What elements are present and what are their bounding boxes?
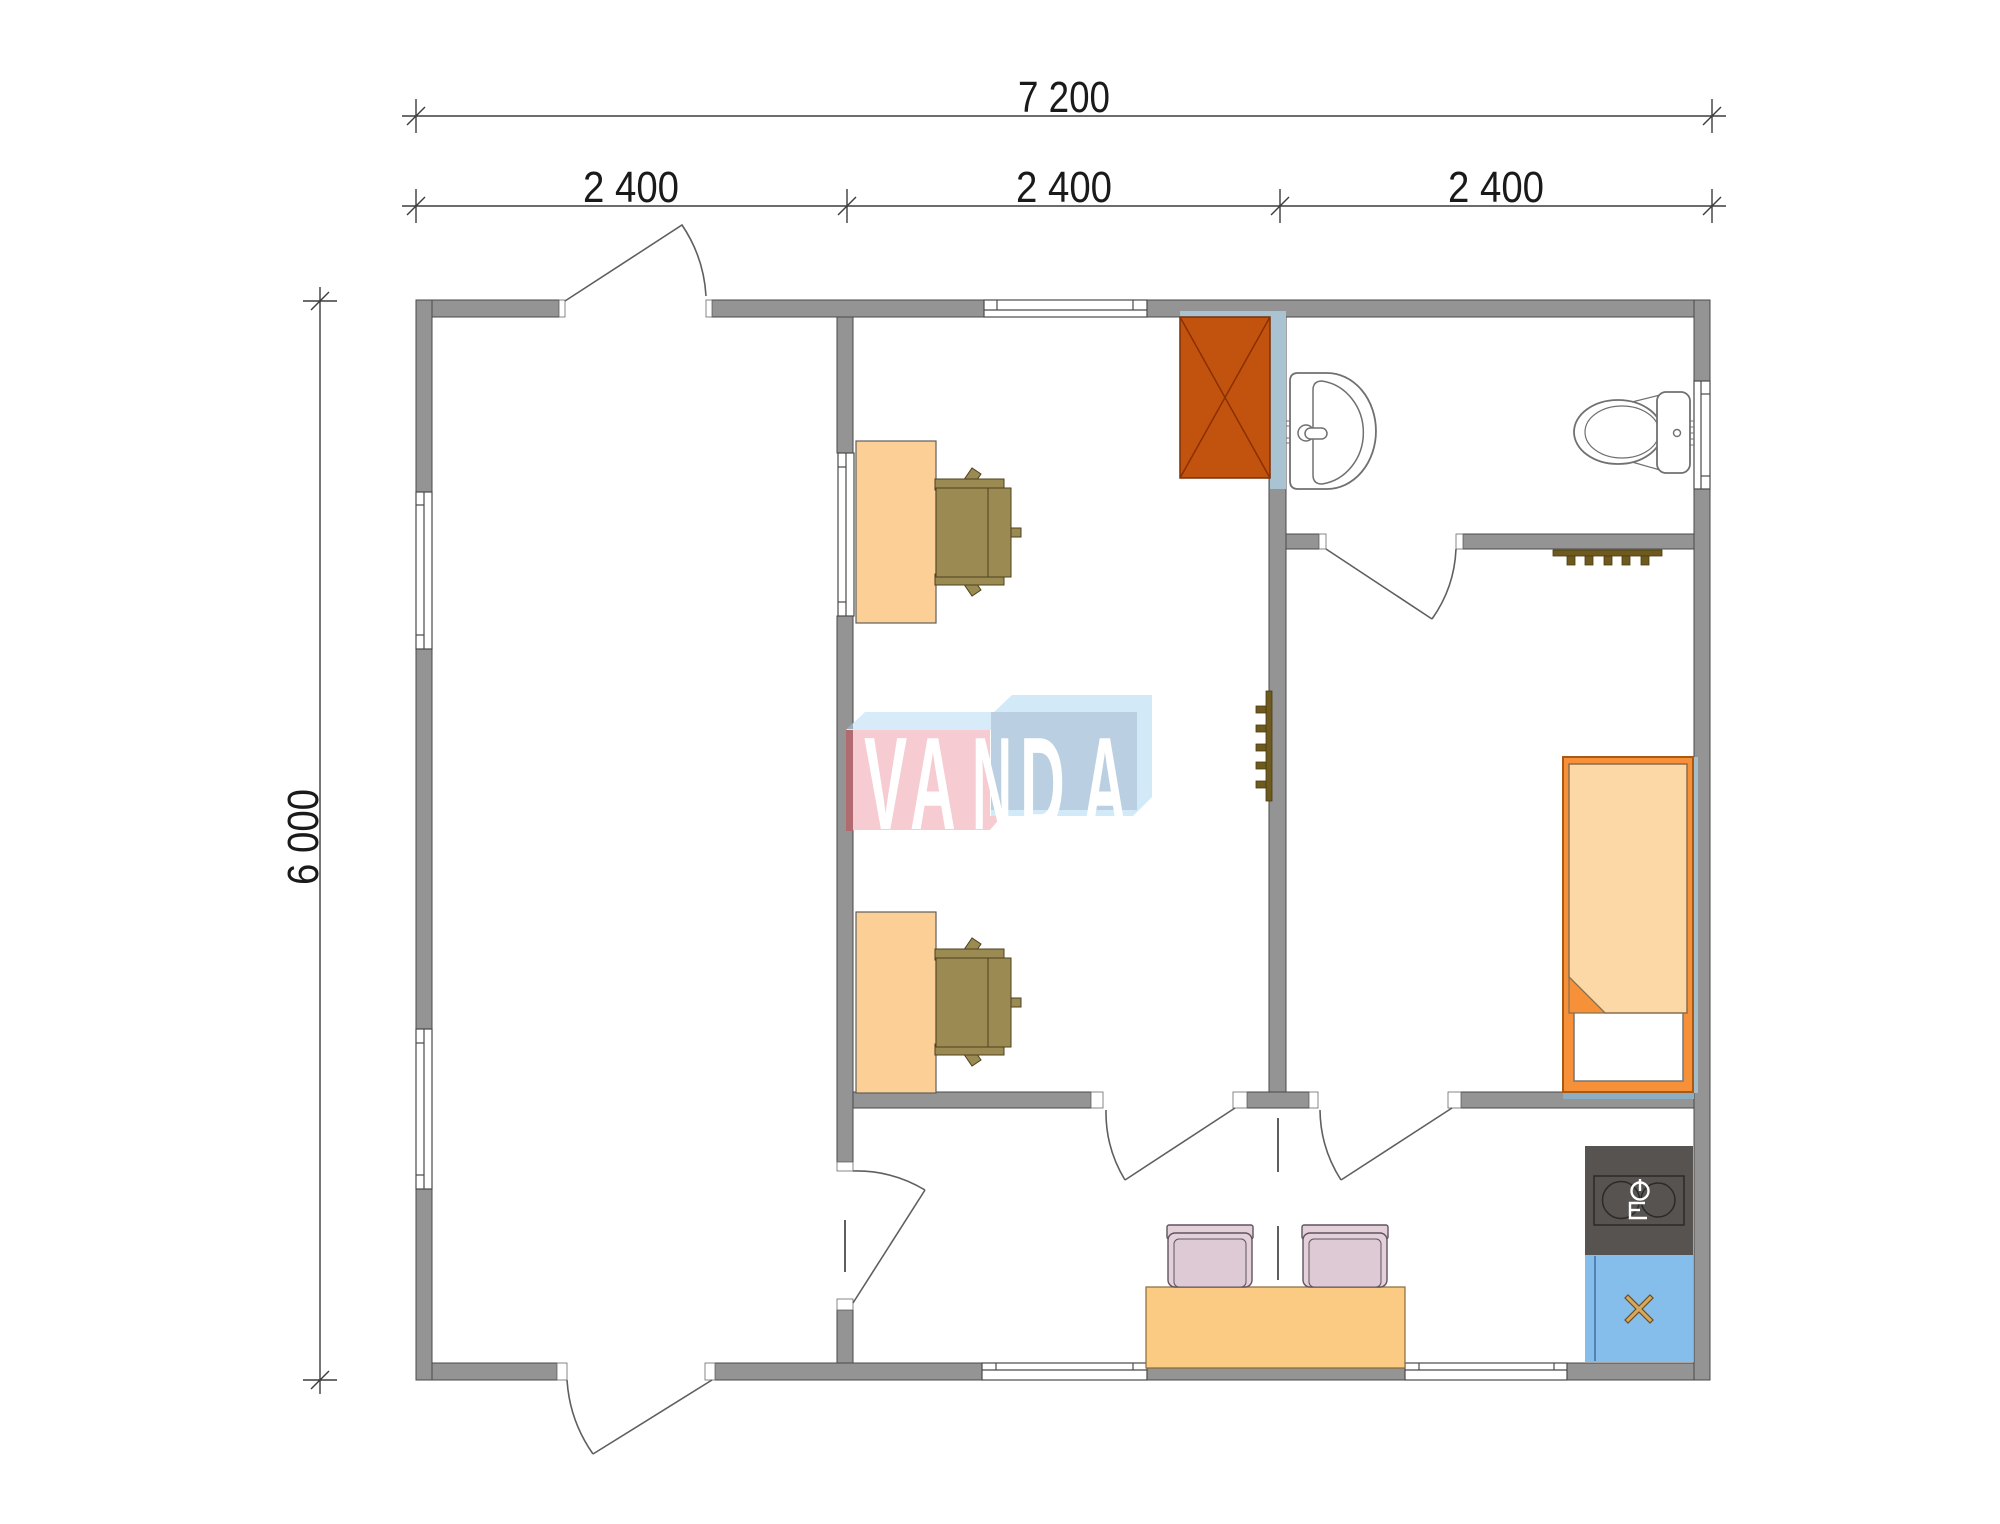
svg-text:7 200: 7 200: [1018, 73, 1110, 122]
svg-text:6 000: 6 000: [279, 789, 328, 885]
svg-text:2 400: 2 400: [1448, 163, 1544, 212]
svg-text:2 400: 2 400: [1016, 163, 1112, 212]
svg-text:N: N: [972, 710, 1012, 857]
svg-text:A: A: [910, 709, 956, 857]
svg-text:A: A: [1083, 710, 1127, 858]
svg-text:V: V: [864, 711, 907, 858]
svg-text:2 400: 2 400: [583, 163, 679, 212]
svg-text:D: D: [1020, 710, 1065, 857]
